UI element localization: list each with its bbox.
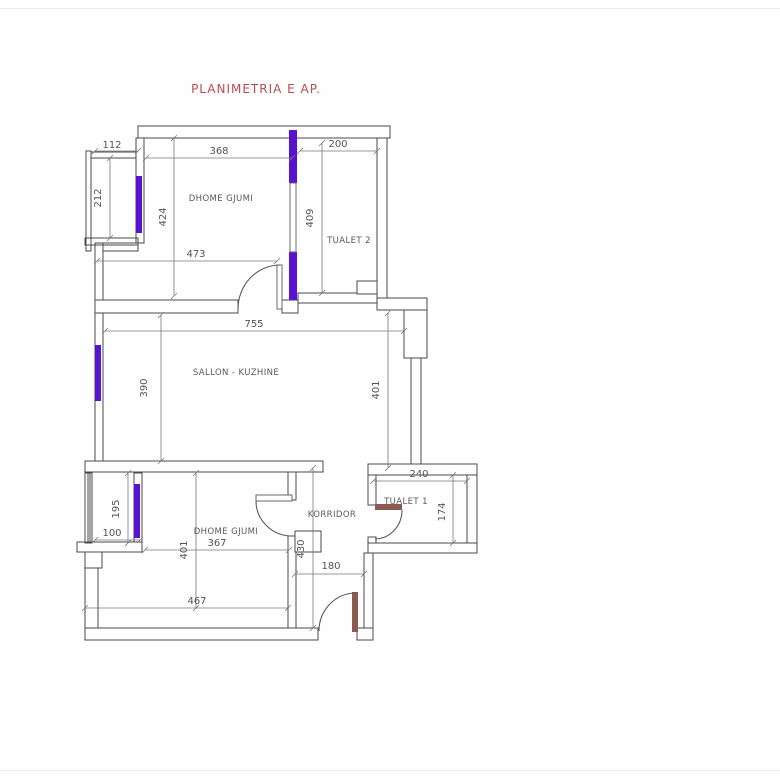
balcony-railing [86,151,91,251]
dim-t1-height: 174 [437,502,448,521]
dimension-line [450,472,456,546]
room-label-sallon: SALLON - KUZHINE [193,368,279,378]
dim-bed2-bottom: 467 [187,596,206,607]
dim-korridor-height: 430 [296,539,307,558]
door-arc [375,510,402,539]
wall-segment [467,475,477,553]
room-label-tualet2: TUALET 2 [326,236,371,246]
dim-balcony2-width: 100 [102,528,121,539]
dim-sallon-left-height: 390 [139,378,150,397]
plan-title: PLANIMETRIA E AP. [191,82,321,96]
dim-bed2-height: 401 [179,540,190,559]
balcony-edge [91,152,136,158]
dim-bed1-bottom: 473 [186,249,205,260]
entry-door-arc [319,593,355,631]
door-leaf [256,495,292,501]
wall-segment [368,543,477,553]
sliding-door-leaf [290,183,296,252]
door-leaf [277,265,282,309]
dimension-line [385,310,391,471]
dimension-line [171,135,177,299]
dimension-line [158,312,164,464]
dim-entry-width: 180 [321,561,340,572]
wall-segment [377,138,387,303]
room-label-bedroom2: DHOME GJUMI [194,527,259,537]
room-label-korridor: KORRIDOR [308,510,356,520]
dimension-line [107,155,113,241]
balconies-group [77,151,142,552]
dimension-line [319,140,325,296]
wall-segment [282,300,298,313]
room-labels-group: DHOME GJUMI TUALET 2 SALLON - KUZHINE DH… [189,194,428,537]
room-label-bedroom1: DHOME GJUMI [189,194,254,204]
room-label-tualet1: TUALET 1 [383,497,428,507]
floor-plan-page: PLANIMETRIA E AP. [0,0,780,780]
dim-bed1-height: 424 [158,207,169,226]
dim-balcony2-height: 195 [111,499,122,518]
wall-segment [377,298,427,310]
window-pane [95,345,101,401]
duct-shaft [357,281,378,294]
floor-plan-canvas: PLANIMETRIA E AP. [0,0,780,780]
dim-t2-width: 200 [328,139,347,150]
dim-t1-width: 240 [409,469,428,480]
dimension-line [193,470,199,611]
dimension-line [125,470,131,546]
dim-bed1-top: 368 [209,146,228,157]
dim-balcony1-width: 112 [102,140,121,151]
wall-segment [95,300,238,313]
wall-segment [85,552,102,568]
dim-sallon-width: 755 [244,319,263,330]
wall-segment [85,568,98,628]
wall-segment [368,537,376,543]
dim-balcony1-height: 212 [93,188,104,207]
entry-door-leaf [352,592,358,632]
door-arc [238,265,280,309]
door-arc [256,501,292,536]
dim-bed2-top: 367 [207,538,226,549]
dim-sallon-right-height: 401 [371,380,382,399]
balcony-railing-hatch [88,473,90,543]
wall-segment [411,358,421,468]
wall-segment [85,628,318,640]
wall-segment [357,628,373,640]
wall-pier [404,310,427,358]
dim-t2-height: 409 [305,208,316,227]
wall-segment [85,461,323,472]
page-edge-bottom [0,770,780,771]
page-edge-top [0,8,780,9]
window-pane [134,484,140,538]
window-pane [289,252,297,300]
window-pane [136,176,142,233]
wall-segment [364,553,373,640]
